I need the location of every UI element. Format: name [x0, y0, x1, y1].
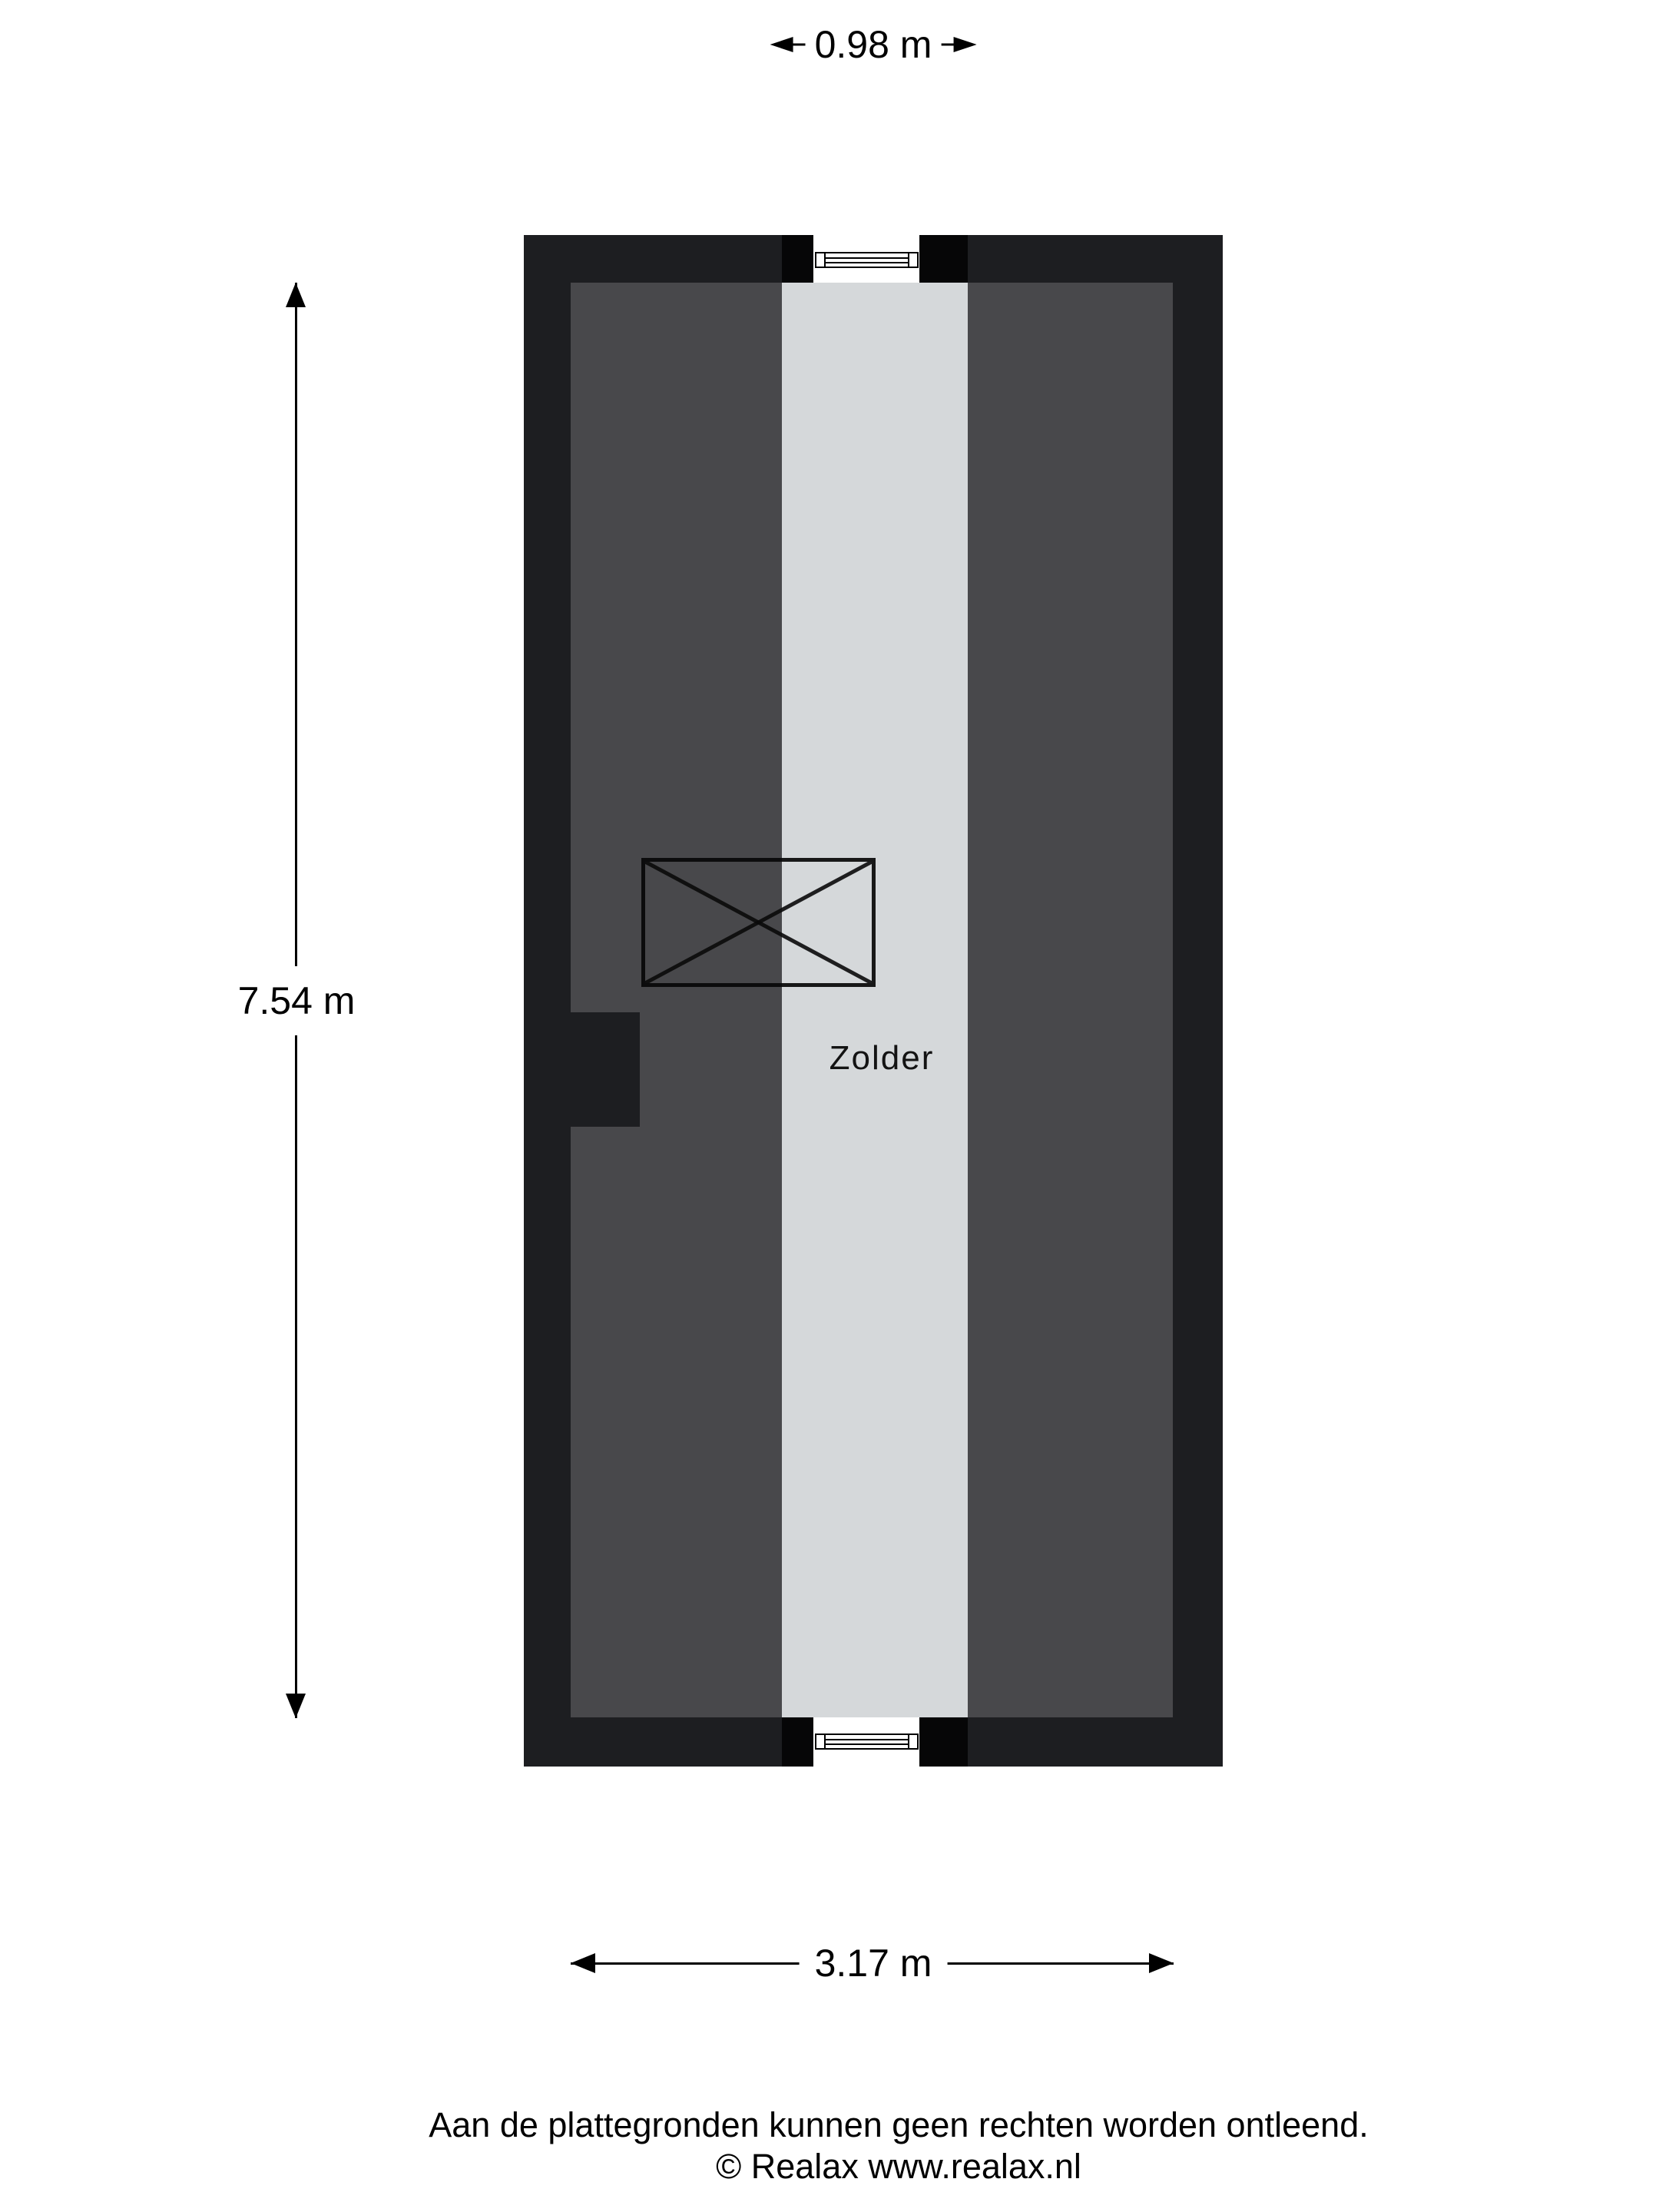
dimension-strip-width: 0.98 m — [770, 22, 977, 67]
dimension-height-label: 7.54 m — [232, 966, 362, 1035]
arrow-left-icon — [571, 1953, 595, 1973]
roof-slope-left — [571, 283, 782, 1717]
window-frame-cap — [816, 253, 826, 267]
attic-room — [571, 283, 1173, 1717]
window-frame-cap — [816, 1735, 826, 1748]
dimension-width-label: 3.17 m — [800, 1935, 948, 1992]
window-jamb-bottom-right — [919, 1717, 968, 1767]
arrow-right-icon — [941, 36, 976, 53]
arrow-up-icon — [286, 283, 306, 307]
floorplan-image: { "room": { "label": "Zolder" }, "dimens… — [0, 0, 1659, 2212]
window-pane-line — [826, 253, 908, 259]
arrow-left-icon — [770, 36, 806, 53]
window-jamb-top-right — [919, 235, 968, 283]
window-jamb-top-left — [782, 235, 813, 283]
window-icon — [815, 1734, 919, 1750]
floor-strip — [782, 283, 968, 1717]
arrow-down-icon — [286, 1694, 306, 1718]
dimension-strip-width-label: 0.98 m — [815, 22, 932, 67]
roof-slope-right — [968, 283, 1173, 1717]
window-jamb-bottom-left — [782, 1717, 813, 1767]
window-frame-cap — [908, 253, 917, 267]
footer: Aan de plattegronden kunnen geen rechten… — [131, 2104, 1659, 2187]
disclaimer-text: Aan de plattegronden kunnen geen rechten… — [131, 2104, 1659, 2146]
window-pane-line — [826, 1745, 908, 1748]
room-label: Zolder — [829, 1039, 935, 1078]
chimney-block — [571, 1012, 640, 1127]
stairs-cross-lines — [645, 862, 872, 983]
window-icon — [815, 252, 919, 268]
floorplan: Zolder — [524, 235, 1223, 1767]
copyright-text: © Realax www.realax.nl — [131, 2146, 1659, 2187]
window-panes — [826, 1735, 908, 1748]
stairs-icon — [641, 858, 876, 987]
window-panes — [826, 253, 908, 267]
window-pane-line — [826, 263, 908, 267]
arrow-right-icon — [1149, 1953, 1174, 1973]
window-frame-cap — [908, 1735, 917, 1748]
window-pane-line — [826, 1735, 908, 1740]
